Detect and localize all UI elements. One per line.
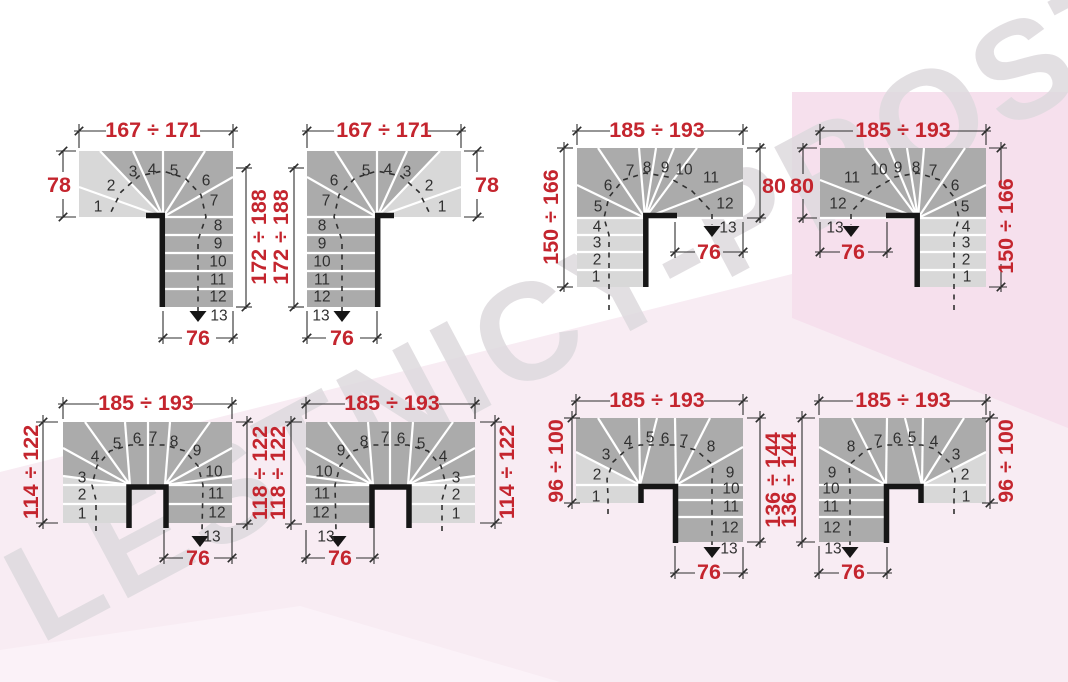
step-number: 6 <box>893 431 902 448</box>
step-number: 1 <box>438 199 447 216</box>
step-number: 7 <box>210 193 219 210</box>
step-number: 4 <box>439 449 448 466</box>
step-number: 5 <box>908 430 917 447</box>
step-number: 5 <box>362 163 371 180</box>
step-number: 3 <box>129 164 138 181</box>
dimension-label-top: 185 ÷ 193 <box>855 118 951 142</box>
step-number: 13 <box>826 220 843 237</box>
step-number: 8 <box>360 434 369 451</box>
step-number: 10 <box>722 481 740 498</box>
step-number: 8 <box>318 218 327 235</box>
step-number: 7 <box>149 430 158 447</box>
step-number: 2 <box>961 467 970 484</box>
step-number: 9 <box>661 160 670 177</box>
step-number: 10 <box>209 254 227 271</box>
step-number: 5 <box>961 199 970 216</box>
dimension-label-bottom: 76 <box>841 240 865 264</box>
step-number: 5 <box>170 163 179 180</box>
step-number: 12 <box>209 289 226 306</box>
dimension-label-bottom: 76 <box>697 560 721 584</box>
step-number: 7 <box>322 193 331 210</box>
step-number: 6 <box>661 431 670 448</box>
step-number: 7 <box>626 163 635 180</box>
dimension-label-bottom: 76 <box>186 546 210 570</box>
step-number: 1 <box>78 506 87 523</box>
step-number: 10 <box>870 162 888 179</box>
dimension-label-left: 172 ÷ 188 <box>269 189 293 285</box>
step-number: 1 <box>963 269 972 286</box>
dimension-label-left: 96 ÷ 100 <box>544 419 568 503</box>
step-number: 13 <box>203 529 220 546</box>
step-number: 3 <box>78 470 87 487</box>
step-divider-line <box>639 418 640 485</box>
step-number: 8 <box>912 160 921 177</box>
dimension-label-bottom: 76 <box>330 326 354 350</box>
step-number: 3 <box>602 447 611 464</box>
dimension-label-right: 96 ÷ 100 <box>994 419 1018 503</box>
step-number: 3 <box>452 470 461 487</box>
step-number: 5 <box>594 199 603 216</box>
step-number: 9 <box>894 160 903 177</box>
dimension-label-right: 172 ÷ 188 <box>247 189 271 285</box>
dimension-label-right: 80 <box>762 174 786 198</box>
dimension-label-top: 185 ÷ 193 <box>855 388 951 412</box>
step-number: 12 <box>823 520 840 537</box>
dimension-label-left: 150 ÷ 166 <box>539 169 563 265</box>
step-number: 6 <box>133 431 142 448</box>
step-number: 10 <box>205 464 223 481</box>
step-number: 13 <box>720 541 737 558</box>
step-number: 12 <box>312 505 329 522</box>
step-number: 8 <box>847 439 856 456</box>
step-number: 5 <box>417 436 426 453</box>
step-number: 6 <box>951 178 960 195</box>
step-number: 4 <box>593 219 602 236</box>
step-number: 3 <box>593 235 602 252</box>
dimension-label-right: 150 ÷ 166 <box>994 178 1018 274</box>
step-number: 3 <box>952 447 961 464</box>
step-number: 5 <box>113 436 122 453</box>
step-number: 10 <box>675 162 693 179</box>
step-number: 13 <box>210 308 227 325</box>
step-number: 10 <box>315 464 333 481</box>
step-number: 12 <box>829 196 846 213</box>
step-number: 12 <box>716 196 733 213</box>
step-number: 4 <box>930 434 939 451</box>
step-number: 6 <box>202 173 211 190</box>
step-number: 7 <box>929 163 938 180</box>
step-number: 12 <box>208 505 225 522</box>
step-number: 10 <box>313 254 331 271</box>
step-number: 3 <box>403 164 412 181</box>
step-number: 6 <box>397 431 406 448</box>
step-number: 8 <box>214 218 223 235</box>
step-number: 4 <box>624 434 633 451</box>
step-number: 8 <box>643 160 652 177</box>
dimension-label-right: 114 ÷ 122 <box>495 425 519 519</box>
dimension-label-bottom: 76 <box>328 546 352 570</box>
step-divider-line <box>922 418 923 485</box>
step-number: 9 <box>726 465 735 482</box>
step-number: 4 <box>148 162 157 179</box>
step-number: 7 <box>381 430 390 447</box>
step-divider-line <box>886 418 887 485</box>
step-number: 4 <box>962 219 971 236</box>
step-number: 1 <box>962 489 971 506</box>
step-number: 5 <box>646 430 655 447</box>
step-number: 2 <box>78 487 87 504</box>
step-number: 12 <box>313 289 330 306</box>
step-number: 13 <box>317 529 334 546</box>
dimension-label-bottom: 76 <box>841 560 865 584</box>
step-number: 2 <box>107 178 116 195</box>
step-number: 11 <box>210 272 226 289</box>
step-number: 2 <box>962 252 971 269</box>
step-number: 1 <box>452 506 461 523</box>
step-divider-line <box>675 418 676 485</box>
step-number: 9 <box>337 443 346 460</box>
dimension-label-left: 78 <box>47 173 71 197</box>
step-number: 13 <box>719 220 736 237</box>
stair-layout-sheet: LESTNICY-PROSTO.RU12345678910111213167 ÷… <box>0 0 1068 682</box>
step-number: 1 <box>592 489 601 506</box>
step-number: 1 <box>94 199 103 216</box>
step-number: 2 <box>593 467 602 484</box>
step-number: 8 <box>170 434 179 451</box>
dimension-label-top: 185 ÷ 193 <box>98 391 194 415</box>
step-number: 11 <box>314 272 330 289</box>
step-number: 9 <box>318 236 327 253</box>
step-number: 11 <box>703 170 719 187</box>
dimension-label-bottom: 76 <box>697 240 721 264</box>
dimension-label-left: 118 ÷ 122 <box>266 426 290 520</box>
dimension-label-right: 78 <box>475 173 499 197</box>
step-number: 11 <box>314 486 330 503</box>
step-number: 7 <box>874 433 883 450</box>
step-number: 4 <box>91 449 100 466</box>
step-number: 9 <box>193 443 202 460</box>
step-number: 11 <box>844 170 860 187</box>
step-number: 11 <box>723 499 739 516</box>
step-number: 11 <box>823 499 839 516</box>
step-number: 2 <box>593 252 602 269</box>
step-number: 6 <box>604 178 613 195</box>
step-number: 7 <box>680 433 689 450</box>
step-number: 4 <box>384 162 393 179</box>
dimension-label-top: 185 ÷ 193 <box>609 118 705 142</box>
dimension-label-top: 185 ÷ 193 <box>344 391 440 415</box>
step-number: 2 <box>452 487 461 504</box>
step-number: 13 <box>312 308 329 325</box>
step-number: 11 <box>208 486 224 503</box>
step-number: 9 <box>214 236 223 253</box>
stair-diagrams-scene: LESTNICY-PROSTO.RU12345678910111213167 ÷… <box>0 0 1068 682</box>
step-number: 2 <box>425 178 434 195</box>
step-number: 9 <box>828 465 837 482</box>
dimension-label-left: 80 <box>790 174 814 198</box>
dimension-label-bottom: 76 <box>186 326 210 350</box>
step-number: 8 <box>707 439 716 456</box>
dimension-label-top: 167 ÷ 171 <box>336 118 432 142</box>
step-number: 10 <box>822 481 840 498</box>
dimension-label-top: 185 ÷ 193 <box>609 388 705 412</box>
step-number: 13 <box>824 541 841 558</box>
dimension-label-left: 136 ÷ 144 <box>777 432 801 528</box>
step-number: 3 <box>962 235 971 252</box>
step-number: 1 <box>592 269 601 286</box>
dimension-label-left: 114 ÷ 122 <box>19 425 43 519</box>
dimension-label-top: 167 ÷ 171 <box>105 118 201 142</box>
step-number: 12 <box>721 520 738 537</box>
step-number: 6 <box>330 173 339 190</box>
